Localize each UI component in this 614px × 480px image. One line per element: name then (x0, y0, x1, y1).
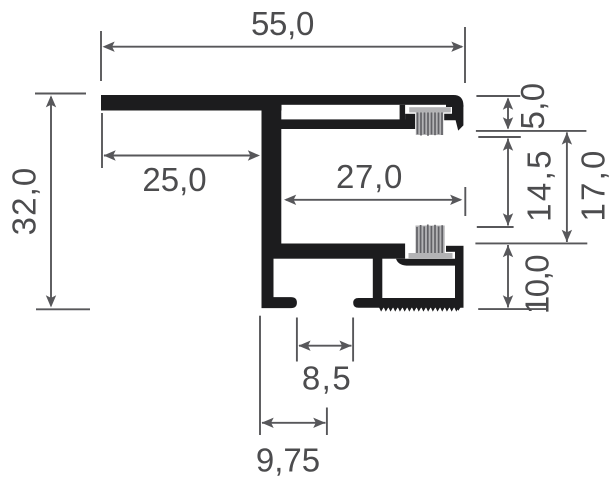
svg-text:14,5: 14,5 (521, 148, 558, 222)
svg-text:27,0: 27,0 (336, 158, 403, 195)
svg-text:55,0: 55,0 (251, 5, 314, 42)
svg-text:32,0: 32,0 (6, 167, 43, 236)
svg-text:25,0: 25,0 (142, 161, 206, 198)
svg-text:17,0: 17,0 (575, 148, 612, 221)
svg-text:5,0: 5,0 (514, 82, 551, 129)
svg-text:8,5: 8,5 (302, 360, 352, 397)
svg-text:10,0: 10,0 (519, 255, 556, 314)
svg-text:9,75: 9,75 (256, 442, 320, 479)
